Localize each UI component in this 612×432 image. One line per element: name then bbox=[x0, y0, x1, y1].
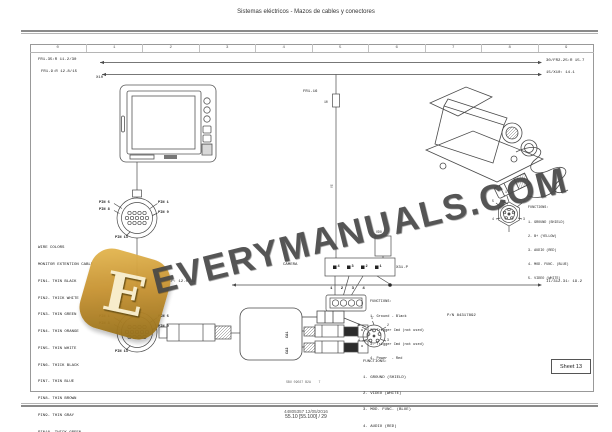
wire-colors-list: WIRE COLORS MONITOR EXTENTION CABLE PIN1… bbox=[38, 235, 93, 432]
ref-label-15x10: 15/X10: 14.1 bbox=[546, 71, 575, 76]
wire-colors-line: PIN7- THIN BLUE bbox=[38, 380, 93, 386]
conn5-pin-number: 5 bbox=[358, 324, 360, 328]
wire-colors-line: PIN8- THIN BROWN bbox=[38, 397, 93, 403]
ref-label-fr1-9: FR1-9:R 12.8/15 bbox=[41, 70, 77, 75]
sheet-number-box: Sheet 13 bbox=[551, 359, 591, 374]
wire-color-label: YE bbox=[331, 184, 335, 188]
functions-line: 3- AUDIO (RED) bbox=[528, 249, 569, 254]
manual-page: Sistemas eléctricos - Mazos de cables y … bbox=[0, 0, 612, 432]
ca1-label: CA1 bbox=[286, 332, 290, 338]
wire-colors-line: PIN6- THICK BLACK bbox=[38, 364, 93, 370]
cable-tip-letter: a bbox=[361, 345, 363, 349]
connector-4pin-numbers: 1 2 3 4 bbox=[330, 287, 368, 292]
connector-4pin-drawing bbox=[326, 295, 366, 311]
drawing-ref: SBU 09027 B2A 7 bbox=[286, 381, 320, 385]
page-title: Sistemas eléctricos - Mazos de cables y … bbox=[0, 9, 612, 16]
logo-letter: E bbox=[98, 258, 152, 329]
functions-line: 2- B+ (YELLOW) bbox=[528, 235, 569, 240]
functions-line: 4- MOD. FUNC. (BLUE) bbox=[528, 263, 569, 268]
functions-line: 5- VIDEO (WHITE) bbox=[528, 277, 569, 282]
ref-label-fr1-35: FR1-35:R 11.2/30 bbox=[38, 58, 76, 63]
conn5-pin-number: 1 bbox=[371, 317, 373, 321]
functions-line: 1- Ground - Black bbox=[370, 315, 424, 320]
camera-pin-number: 1 bbox=[380, 265, 382, 269]
pin-label: PIN 9 bbox=[158, 211, 169, 215]
fuse-name-label: FR1-16 bbox=[303, 90, 317, 95]
functions-line: FUNCTIONS: bbox=[363, 360, 411, 365]
functions-line: 1. GROUND (SHIELD) bbox=[363, 376, 411, 381]
functions-line: 1- GROUND (SHIELD) bbox=[528, 221, 569, 226]
fuse-rating-label: 10 bbox=[324, 101, 328, 105]
pin-label: PIN 8 bbox=[99, 208, 110, 212]
wire-colors-line: WIRE COLORS bbox=[38, 246, 93, 252]
pin-label: PIN 6 bbox=[99, 201, 110, 205]
wire-colors-line: PIN5- THIN WHITE bbox=[38, 347, 93, 353]
sheet-number-label: Sheet 13 bbox=[560, 364, 582, 370]
camera-connector-functions: FUNCTIONS: 1- GROUND (SHIELD) 2- B+ (YEL… bbox=[528, 197, 569, 291]
ca2-label: CA2 bbox=[286, 348, 290, 354]
monitor-drawing bbox=[120, 85, 216, 162]
functions-line: 2. VIDEO (WHITE) bbox=[363, 392, 411, 397]
ref-label-x10: X10 bbox=[96, 76, 103, 81]
conn5-pin-number: 3 bbox=[387, 339, 389, 343]
ref-label-30fr2: 30/FR2-25:R 15.7 bbox=[546, 59, 584, 64]
camera-pin-number: 2 bbox=[366, 265, 368, 269]
functions-line: FUNCTIONS: bbox=[370, 300, 424, 305]
footer-section-page: 55.10 [55.100] / 29 bbox=[0, 415, 612, 421]
camera-pin-number: 3 bbox=[352, 265, 354, 269]
functions-line: 4. AUDIO (RED) bbox=[363, 425, 411, 430]
wire-colors-line: MONITOR EXTENTION CABLE bbox=[38, 263, 93, 269]
cable-tip-letter: a bbox=[361, 329, 363, 333]
pin-label: PIN 9 bbox=[158, 325, 169, 329]
conn5-pin-number: 4 bbox=[358, 339, 360, 343]
camera-pin-number: 4 bbox=[338, 265, 340, 269]
ca2-cable-drawing bbox=[304, 341, 368, 353]
camera-conn-pin-number: 3 bbox=[523, 218, 525, 222]
pin-label: PIN 13 bbox=[115, 236, 128, 240]
wire-colors-line: PIN4- THIN ORANGE bbox=[38, 330, 93, 336]
speaker-grille bbox=[202, 144, 212, 155]
functions-line: 3- Trigger Cmd (not used) bbox=[370, 343, 424, 348]
x31p-connector-label: X31.P bbox=[396, 266, 408, 271]
part-number-inline: P/N 84317892 bbox=[447, 314, 476, 319]
pin-label: PIN 13 bbox=[115, 350, 128, 354]
monitor-connector-drawing bbox=[114, 198, 158, 238]
functions-line: 2- Trigger Cmd (not used) bbox=[370, 329, 424, 334]
conn5-pin-number: 2 bbox=[387, 324, 389, 328]
pin-label: PIN 1 bbox=[158, 201, 169, 205]
